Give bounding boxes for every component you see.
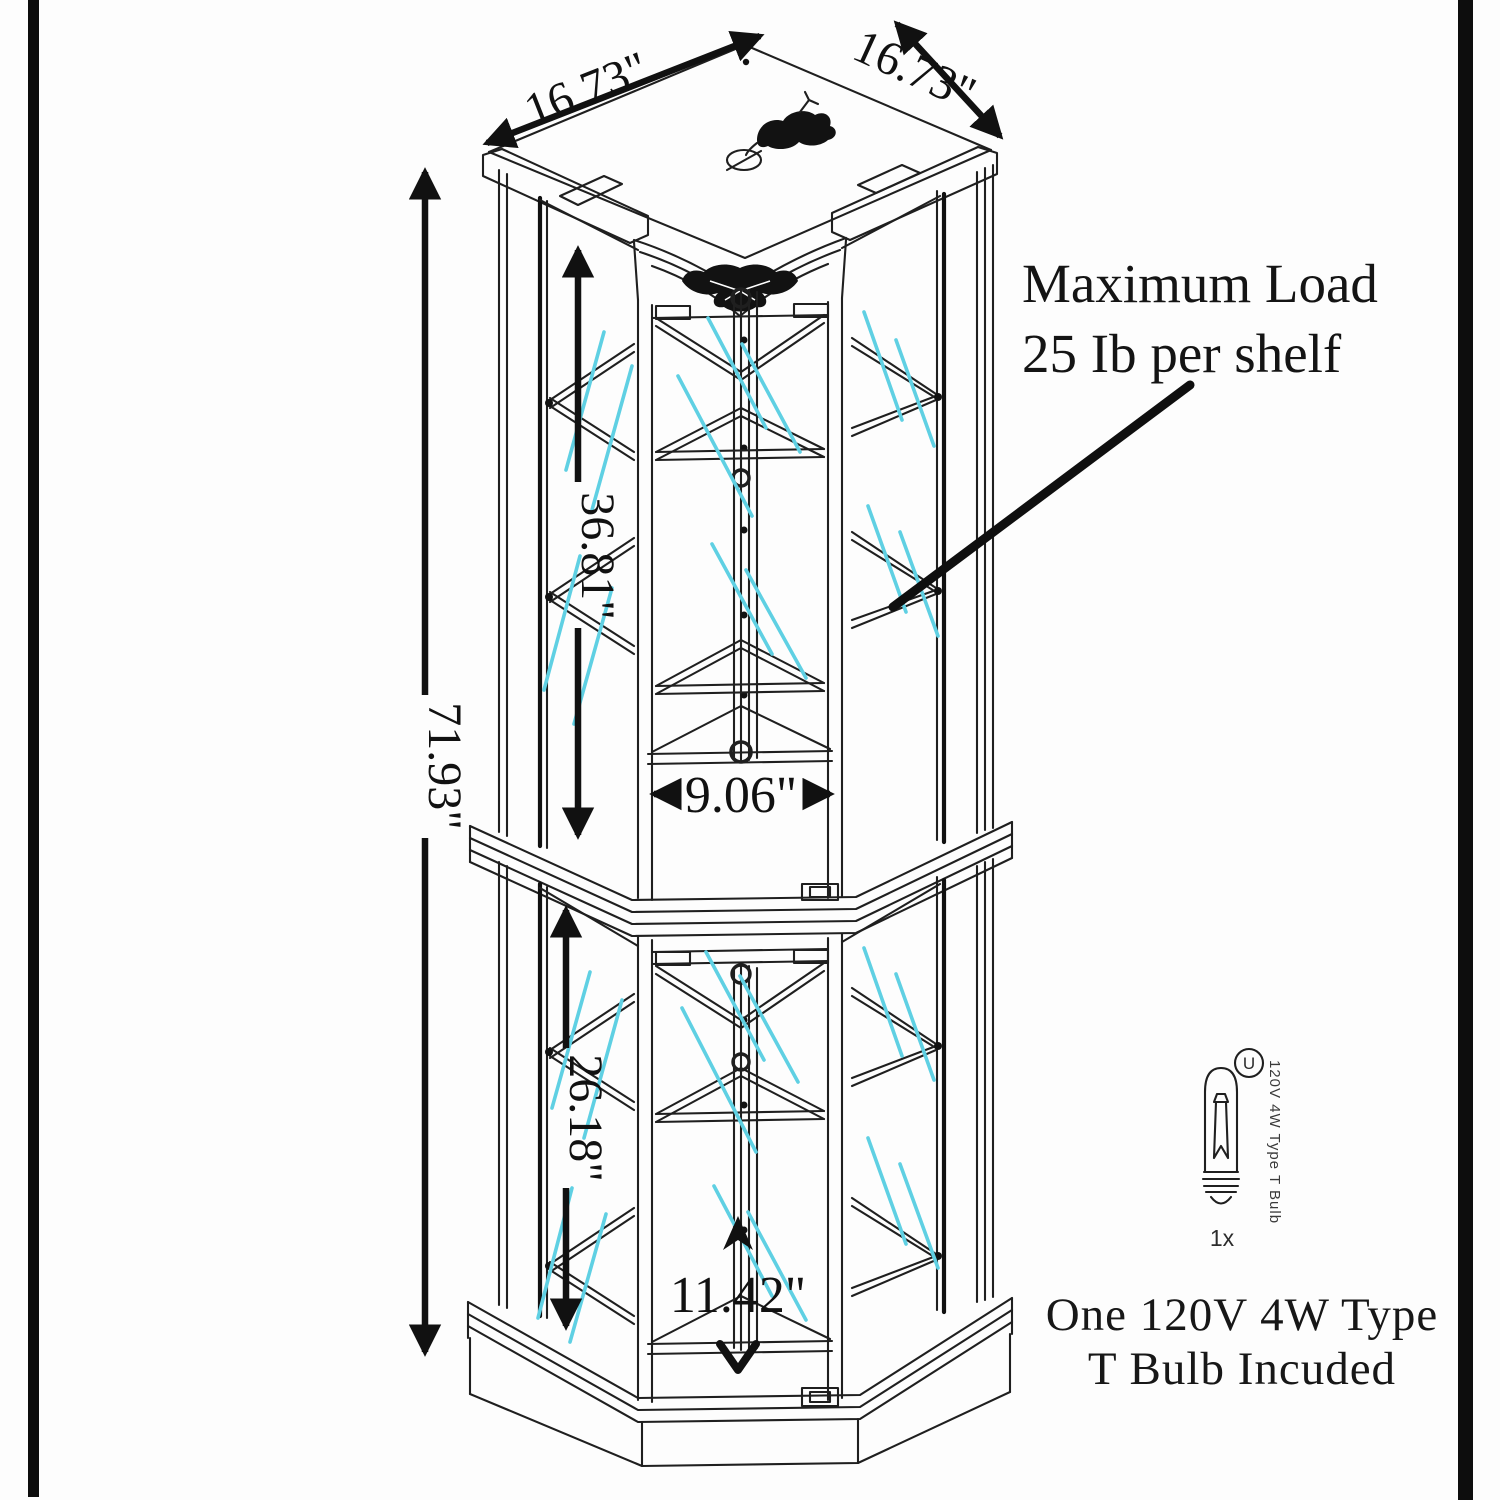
- dimension-annotations: 16.73" 16.73" 71.93" 36.81" 26.18" 9.06": [418, 19, 1378, 1370]
- frame-border-right: [1458, 0, 1473, 1500]
- dim-label-top-left: 16.73": [517, 42, 655, 138]
- bulb-legend: U 120V 4W Type T Bulb 1x One 120V 4W Typ…: [1046, 1049, 1439, 1395]
- cabinet-drawing: [468, 45, 1012, 1466]
- dim-lower-shelf-width: 11.42": [670, 1216, 806, 1370]
- certification-mark: U: [1243, 1054, 1255, 1073]
- max-load-line1: Maximum Load: [1022, 253, 1378, 314]
- dim-label-top-right: 16.73": [845, 19, 983, 120]
- bulb-note-line2: T Bulb Incuded: [1088, 1343, 1396, 1395]
- frame-border-left: [28, 0, 39, 1497]
- max-load-note: Maximum Load 25 Ib per shelf: [893, 253, 1378, 607]
- dim-top-right-width: 16.73": [845, 19, 1000, 136]
- dim-overall-height: 71.93": [418, 172, 471, 1352]
- bulb-note: One 120V 4W Type T Bulb Incuded: [1046, 1289, 1439, 1395]
- cord-hole-dot: [743, 59, 749, 65]
- down-chevron: [720, 1344, 756, 1370]
- max-load-line2: 25 Ib per shelf: [1022, 323, 1342, 384]
- bulb-spec-label: 120V 4W Type T Bulb: [1266, 1060, 1283, 1224]
- diagram-page: 16.73" 16.73" 71.93" 36.81" 26.18" 9.06": [0, 0, 1500, 1500]
- bulb-quantity: 1x: [1210, 1225, 1235, 1251]
- door-hinge-lower: [802, 1388, 838, 1406]
- dim-label-upper-height: 36.81": [571, 492, 624, 620]
- dim-upper-shelf-width: 9.06": [654, 767, 830, 824]
- dim-label-upper-shelf-width: 9.06": [685, 767, 797, 824]
- dim-label-lower-shelf-width: 11.42": [670, 1267, 806, 1324]
- power-cord-icon: [746, 92, 836, 155]
- dim-label-lower-height: 26.18": [559, 1054, 612, 1182]
- bulb-note-line1: One 120V 4W Type: [1046, 1289, 1439, 1341]
- dim-lower-interior-height: 26.18": [559, 910, 612, 1326]
- bulb-icon: U: [1203, 1049, 1263, 1204]
- dim-top-left-width: 16.73": [487, 36, 760, 143]
- crown-tab-right: [858, 165, 920, 193]
- dim-label-overall-height: 71.93": [418, 702, 471, 830]
- dim-upper-interior-height: 36.81": [571, 250, 624, 835]
- waist-molding: [470, 822, 1012, 936]
- cabinet-diagram: 16.73" 16.73" 71.93" 36.81" 26.18" 9.06": [0, 0, 1500, 1500]
